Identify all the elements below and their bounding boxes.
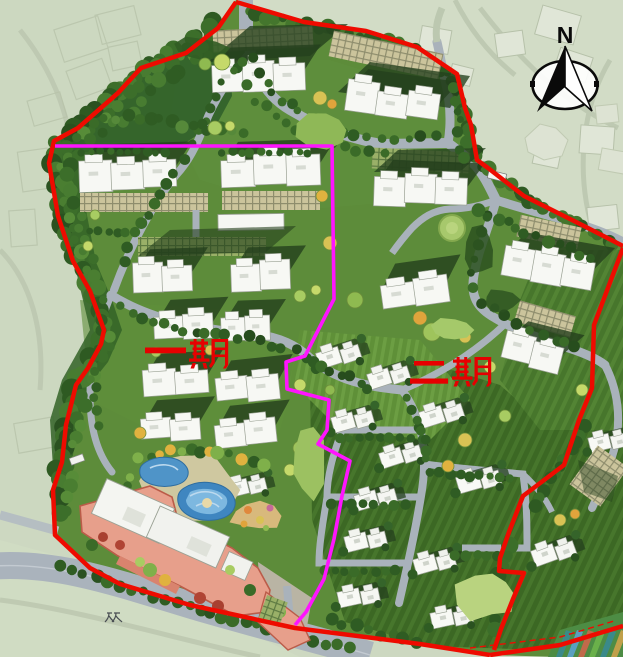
svg-text:N: N [557, 22, 574, 48]
